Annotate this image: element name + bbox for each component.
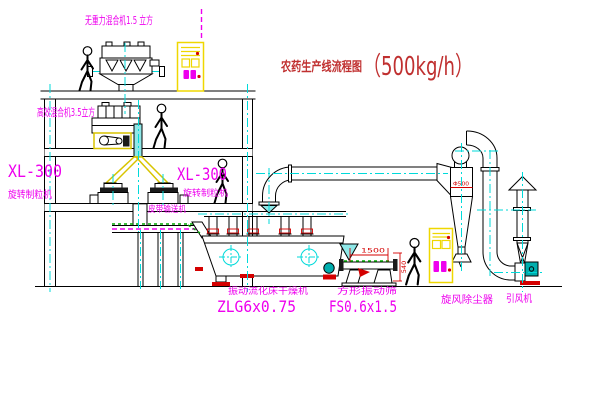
label-belt-conveyor: 皮带输送机 (148, 203, 186, 215)
sieve-height-dim: 540 (400, 261, 408, 273)
label-fan: 引风机 (506, 292, 532, 305)
control-cabinet-1 (178, 43, 204, 92)
sieve-length-dim: 1500 (361, 247, 385, 255)
label-sieve-name: 方形振动筛 (337, 285, 397, 297)
cyclone-diameter-dim: Φ500 (453, 182, 470, 188)
label-sieve-model: FS0.6x1.5 (329, 297, 397, 316)
indicator-dot (196, 52, 199, 55)
indicator-dot (447, 236, 450, 239)
label-granulator-mid-model: XL-300 (177, 165, 227, 185)
dryer-discharge-cone (340, 244, 358, 260)
label-granulator-left-model: XL-300 (8, 162, 62, 182)
fan-motor (525, 262, 538, 276)
label-granulator-left-name: 旋转制粒机 (8, 188, 52, 201)
label-mixer-2f: 高效混合机3.5立方 (37, 105, 95, 119)
gravity-free-mixer (88, 42, 165, 91)
high-efficiency-mixer (92, 103, 142, 158)
indicator-dot (448, 268, 451, 271)
vibration-motor (324, 263, 334, 273)
belt-conveyor (112, 204, 198, 287)
indicator-dot (197, 75, 200, 78)
process-flow-diagram: Φ500 1500 540 农药生产线流程图 （500kg/h） 无重力混合机1… (0, 0, 600, 403)
downcomer-duct (481, 158, 517, 280)
label-gravity-mixer: 无重力混合机1.5 立方 (85, 13, 153, 27)
label-cyclone: 旋风除尘器 (441, 293, 493, 306)
exhaust-duct (259, 164, 452, 214)
label-dryer-name: 振动流化床干燥机 (228, 285, 308, 297)
induced-draft-fan (515, 243, 540, 285)
title-text: 农药生产线流程图 (280, 59, 362, 75)
diagram-title: 农药生产线流程图 （500kg/h） (280, 52, 473, 82)
title-capacity: （500kg/h） (363, 52, 473, 82)
person-figure (154, 104, 168, 148)
control-cabinet-2 (430, 229, 453, 283)
diagram-canvas: Φ500 1500 540 农药生产线流程图 （500kg/h） 无重力混合机1… (0, 0, 600, 403)
label-granulator-mid-name: 旋转制粒机 (183, 187, 228, 199)
label-dryer-model: ZLG6x0.75 (217, 297, 296, 316)
person-figure (406, 238, 420, 284)
